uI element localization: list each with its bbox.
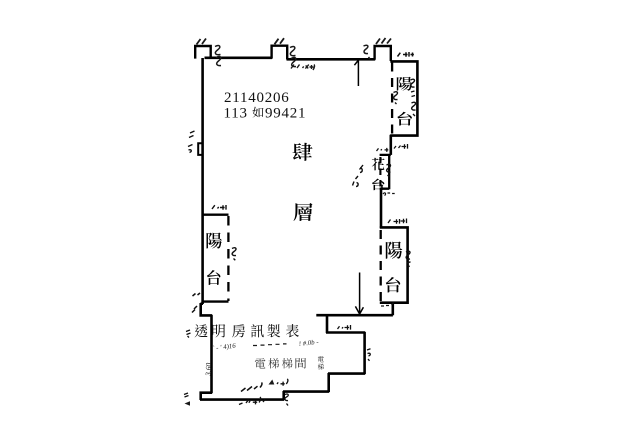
svg-text:99421: 99421 [265, 106, 306, 122]
svg-text:113: 113 [224, 106, 248, 122]
svg-text:21140206: 21140206 [224, 90, 289, 106]
svg-text:3.60: 3.60 [203, 362, 212, 377]
